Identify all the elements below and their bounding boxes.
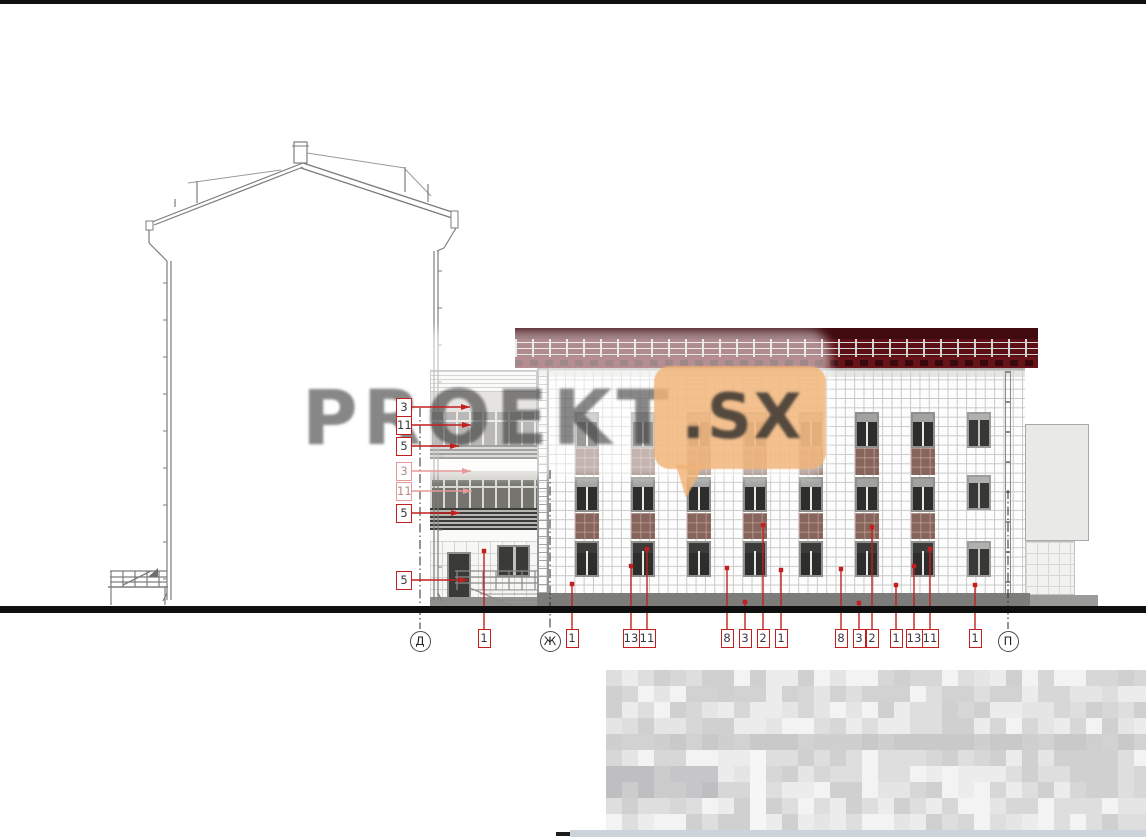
censored-cell — [910, 766, 926, 782]
censored-cell — [958, 782, 974, 798]
censored-cell — [622, 750, 638, 766]
censored-cell — [814, 750, 830, 766]
facade-window — [911, 412, 935, 448]
censored-cell — [686, 766, 702, 782]
censored-cell — [830, 750, 846, 766]
censored-cell — [846, 670, 862, 686]
censored-cell — [750, 718, 766, 734]
censored-cell — [1054, 750, 1070, 766]
censored-cell — [878, 766, 894, 782]
censored-cell — [782, 686, 798, 702]
censored-cell — [638, 702, 654, 718]
callout-box: 13 — [906, 629, 923, 648]
callout-box: 11 — [922, 629, 939, 648]
censored-cell — [974, 718, 990, 734]
censored-cell — [862, 798, 878, 814]
censored-cell — [798, 814, 814, 830]
rear-annex-lower — [1025, 541, 1075, 595]
censored-cell — [974, 782, 990, 798]
censored-cell — [702, 766, 718, 782]
censored-cell — [622, 670, 638, 686]
callout-box: 1 — [775, 629, 788, 648]
censored-cell — [766, 782, 782, 798]
window-transom — [857, 414, 877, 422]
censored-cell — [766, 766, 782, 782]
link-slab-1 — [430, 530, 537, 541]
censored-cell — [830, 718, 846, 734]
censored-cell — [958, 686, 974, 702]
window-transom — [745, 479, 765, 487]
censored-cell — [1086, 798, 1102, 814]
censored-cell — [670, 750, 686, 766]
censored-cell — [638, 814, 654, 830]
censored-cell — [926, 766, 942, 782]
censored-cell — [862, 814, 878, 830]
censored-cell — [942, 766, 958, 782]
censored-cell — [1118, 702, 1134, 718]
censored-cell — [862, 670, 878, 686]
censored-cell — [1070, 686, 1086, 702]
window-mullion — [922, 487, 924, 510]
censored-cell — [670, 686, 686, 702]
censored-cell — [718, 766, 734, 782]
censored-cell — [894, 766, 910, 782]
callout-box: 1 — [890, 629, 903, 648]
spandrel-panel — [855, 448, 879, 475]
censored-cell — [1022, 734, 1038, 750]
link-louvers-1 — [430, 508, 537, 530]
censored-cell — [702, 798, 718, 814]
window-transom — [801, 479, 821, 487]
censored-cell — [894, 734, 910, 750]
censored-cell — [1102, 686, 1118, 702]
censored-cell — [1054, 814, 1070, 830]
censored-cell — [622, 718, 638, 734]
censored-cell — [942, 798, 958, 814]
censored-cell — [1134, 782, 1146, 798]
ground-line — [0, 606, 1146, 613]
censored-cell — [654, 670, 670, 686]
censored-cell — [718, 814, 734, 830]
spandrel-panel — [743, 513, 767, 539]
facade-window — [743, 541, 767, 577]
censored-cell — [1022, 782, 1038, 798]
censored-cell — [686, 702, 702, 718]
censored-cell — [1054, 670, 1070, 686]
spandrel-panel — [855, 513, 879, 539]
spandrel-panel — [799, 513, 823, 539]
censored-cell — [766, 814, 782, 830]
censored-cell — [846, 686, 862, 702]
censored-cell — [862, 702, 878, 718]
censored-cell — [1038, 718, 1054, 734]
censored-cell — [718, 798, 734, 814]
censored-cell — [846, 718, 862, 734]
censored-cell — [1038, 814, 1054, 830]
censored-cell — [670, 782, 686, 798]
facade-window — [743, 477, 767, 512]
censored-cell — [1134, 798, 1146, 814]
annex-plinth — [1030, 595, 1098, 606]
censored-cell — [718, 718, 734, 734]
censored-cell — [734, 718, 750, 734]
facade-window — [911, 477, 935, 512]
censored-cell — [1054, 734, 1070, 750]
censored-cell — [878, 734, 894, 750]
censored-cell — [894, 670, 910, 686]
censored-cell — [1134, 750, 1146, 766]
censored-cell — [638, 734, 654, 750]
censored-cell — [1006, 782, 1022, 798]
censored-cell — [1102, 718, 1118, 734]
censored-cell — [638, 686, 654, 702]
link-plinth — [430, 597, 537, 606]
facade-window — [855, 412, 879, 448]
censored-cell — [1102, 702, 1118, 718]
callout-box: 3 — [853, 629, 866, 648]
censored-cell — [606, 670, 622, 686]
censored-cell — [926, 814, 942, 830]
censored-cell — [718, 750, 734, 766]
censored-cell — [926, 686, 942, 702]
facade-window — [967, 412, 991, 448]
callout-box: 3 — [739, 629, 752, 648]
censored-cell — [622, 766, 638, 782]
censored-cell — [686, 686, 702, 702]
window-mullion — [866, 551, 868, 575]
censored-cell — [718, 702, 734, 718]
censored-cell — [766, 670, 782, 686]
censored-cell — [686, 718, 702, 734]
censored-cell — [1086, 718, 1102, 734]
censored-cell — [670, 734, 686, 750]
censored-cell — [926, 750, 942, 766]
censored-cell — [606, 734, 622, 750]
elevation-drawing-canvas: PROEKT .SX ДЖП11131183218321131113115311… — [0, 0, 1146, 838]
censored-cell — [1086, 766, 1102, 782]
censored-cell — [782, 702, 798, 718]
censored-cell — [830, 734, 846, 750]
censored-cell — [1134, 766, 1146, 782]
facade-window — [575, 477, 599, 512]
censored-cell — [734, 734, 750, 750]
window-mullion — [922, 551, 924, 575]
censored-cell — [814, 718, 830, 734]
censored-cell — [734, 750, 750, 766]
spandrel-panel — [631, 513, 655, 539]
window-mullion — [698, 551, 700, 575]
censored-cell — [830, 814, 846, 830]
censored-cell — [734, 670, 750, 686]
censored-cell — [958, 718, 974, 734]
watermark-bubble-text: .SX — [660, 386, 825, 448]
censored-cell — [1006, 798, 1022, 814]
censored-cell — [734, 814, 750, 830]
censored-cell — [958, 798, 974, 814]
censored-cell — [894, 686, 910, 702]
censored-cell — [1102, 782, 1118, 798]
censored-cell — [910, 798, 926, 814]
censored-cell — [910, 670, 926, 686]
censored-cell — [942, 718, 958, 734]
facade-window — [631, 477, 655, 512]
censored-cell — [990, 814, 1006, 830]
censored-cell — [622, 814, 638, 830]
window-transom — [633, 479, 653, 487]
censored-cell — [782, 814, 798, 830]
censored-cell — [990, 734, 1006, 750]
censored-cell — [1006, 686, 1022, 702]
censored-cell — [958, 702, 974, 718]
censored-cell — [1038, 670, 1054, 686]
censored-cell — [654, 702, 670, 718]
window-mullion — [810, 551, 812, 575]
censored-cell — [990, 686, 1006, 702]
censored-cell — [670, 798, 686, 814]
entrance-window — [497, 545, 530, 577]
censored-cell — [942, 670, 958, 686]
censored-cell — [1038, 702, 1054, 718]
material-callout-box: 5 — [396, 437, 412, 456]
link-glazing-1 — [430, 480, 537, 508]
censored-cell — [1022, 766, 1038, 782]
material-callout-box: 11 — [396, 482, 412, 501]
facade-window — [911, 541, 935, 577]
censored-cell — [1070, 814, 1086, 830]
censored-cell — [990, 798, 1006, 814]
censored-cell — [974, 734, 990, 750]
material-callout-box: 5 — [396, 571, 412, 590]
censored-cell — [846, 782, 862, 798]
censored-cell — [1022, 686, 1038, 702]
window-mullion — [642, 487, 644, 510]
censored-cell — [1070, 702, 1086, 718]
censored-cell — [1118, 750, 1134, 766]
censored-cell — [1006, 734, 1022, 750]
censored-cell — [958, 750, 974, 766]
censored-cell — [1054, 702, 1070, 718]
censored-cell — [1102, 734, 1118, 750]
censored-cell — [1038, 734, 1054, 750]
axis-marker-Ж: Ж — [540, 631, 561, 652]
censored-cell — [958, 734, 974, 750]
censored-cell — [1006, 670, 1022, 686]
censored-cell — [926, 670, 942, 686]
censored-cell — [814, 734, 830, 750]
censored-cell — [926, 798, 942, 814]
censored-cell — [1070, 718, 1086, 734]
censored-cell — [1086, 782, 1102, 798]
censored-cell — [1118, 766, 1134, 782]
censored-cell — [926, 718, 942, 734]
censored-cell — [798, 782, 814, 798]
censored-cell — [910, 718, 926, 734]
censored-cell — [846, 702, 862, 718]
censored-cell — [702, 686, 718, 702]
censored-cell — [782, 798, 798, 814]
censored-cell — [1070, 766, 1086, 782]
censored-cell — [606, 766, 622, 782]
censored-cell — [702, 814, 718, 830]
censored-cell — [1022, 670, 1038, 686]
censored-cell — [1086, 734, 1102, 750]
censored-cell — [1038, 750, 1054, 766]
censored-cell — [1118, 798, 1134, 814]
censored-cell — [606, 718, 622, 734]
facade-window — [855, 541, 879, 577]
censored-cell — [718, 670, 734, 686]
censored-cell — [766, 702, 782, 718]
censored-cell — [622, 782, 638, 798]
window-transom — [857, 479, 877, 487]
censored-cell — [926, 782, 942, 798]
censored-cell — [1118, 686, 1134, 702]
censored-cell — [1118, 670, 1134, 686]
facade-window — [687, 541, 711, 577]
axis-marker-П: П — [998, 631, 1019, 652]
censored-cell — [798, 670, 814, 686]
censored-cell — [1102, 766, 1118, 782]
censored-cell — [990, 782, 1006, 798]
facade-plinth — [537, 593, 1030, 606]
spandrel-panel — [911, 513, 935, 539]
censored-cell — [974, 686, 990, 702]
censored-cell — [910, 750, 926, 766]
censored-cell — [702, 750, 718, 766]
window-mullion — [586, 551, 588, 575]
censored-cell — [1006, 766, 1022, 782]
censored-cell — [942, 686, 958, 702]
censored-cell — [926, 734, 942, 750]
censored-cell — [702, 782, 718, 798]
censored-cell — [878, 718, 894, 734]
censored-cell — [958, 766, 974, 782]
censored-cell — [606, 686, 622, 702]
censored-cell — [1054, 686, 1070, 702]
censored-cell — [862, 782, 878, 798]
censored-cell — [1038, 686, 1054, 702]
censored-cell — [814, 766, 830, 782]
censored-cell — [990, 766, 1006, 782]
censored-cell — [686, 814, 702, 830]
censored-cell — [942, 750, 958, 766]
rear-annex-block — [1025, 424, 1089, 541]
censored-cell — [1102, 798, 1118, 814]
censored-cell — [750, 750, 766, 766]
censored-cell — [942, 782, 958, 798]
censored-cell — [702, 670, 718, 686]
censored-cell — [782, 750, 798, 766]
censored-cell — [878, 670, 894, 686]
censored-cell — [846, 814, 862, 830]
censored-cell — [750, 782, 766, 798]
censored-cell — [638, 750, 654, 766]
censored-cell — [1102, 670, 1118, 686]
window-mullion — [866, 422, 868, 446]
censored-cell — [638, 718, 654, 734]
facade-window — [799, 541, 823, 577]
censored-cell — [798, 702, 814, 718]
material-callout-box: 3 — [396, 462, 412, 481]
window-mullion — [978, 483, 980, 508]
censored-cell — [862, 750, 878, 766]
censored-cell — [1086, 686, 1102, 702]
censored-cell — [670, 766, 686, 782]
censored-cell — [686, 734, 702, 750]
censored-cell — [1070, 750, 1086, 766]
bottom-strip — [570, 830, 1146, 837]
censored-cell — [878, 798, 894, 814]
facade-window — [799, 477, 823, 512]
bottom-strip-tick — [556, 832, 570, 836]
censored-cell — [1102, 814, 1118, 830]
censored-cell — [1006, 718, 1022, 734]
rain-downpipe — [1005, 371, 1011, 603]
facade-window — [855, 477, 879, 512]
censored-cell — [766, 718, 782, 734]
censored-cell — [606, 750, 622, 766]
censored-cell — [1070, 782, 1086, 798]
censored-cell — [958, 670, 974, 686]
censored-cell — [1070, 734, 1086, 750]
censored-cell — [974, 670, 990, 686]
censored-cell — [1102, 750, 1118, 766]
censored-cell — [814, 702, 830, 718]
censored-cell — [814, 670, 830, 686]
censored-cell — [702, 718, 718, 734]
censored-cell — [1118, 782, 1134, 798]
censored-cell — [894, 750, 910, 766]
censored-cell — [782, 734, 798, 750]
censored-cell — [798, 718, 814, 734]
censored-cell — [990, 670, 1006, 686]
censored-cell — [718, 734, 734, 750]
censored-cell — [862, 766, 878, 782]
censored-cell — [1134, 686, 1146, 702]
censored-cell — [1086, 750, 1102, 766]
censored-cell — [862, 686, 878, 702]
censored-cell — [782, 670, 798, 686]
censored-cell — [1086, 702, 1102, 718]
material-callout-box: 3 — [396, 398, 412, 417]
censored-cell — [766, 734, 782, 750]
callout-box: 2 — [757, 629, 770, 648]
axis-marker-Д: Д — [410, 631, 431, 652]
censored-cell — [814, 814, 830, 830]
censored-cell — [654, 686, 670, 702]
callout-box: 8 — [721, 629, 734, 648]
window-mullion — [754, 487, 756, 510]
censored-cell — [894, 814, 910, 830]
window-mullion — [754, 551, 756, 575]
censored-cell — [1118, 718, 1134, 734]
censored-cell — [734, 766, 750, 782]
censored-cell — [894, 702, 910, 718]
censored-title-block — [606, 670, 1146, 830]
censored-cell — [654, 750, 670, 766]
sheet-top-border — [0, 0, 1146, 4]
censored-cell — [718, 686, 734, 702]
censored-cell — [878, 750, 894, 766]
window-mullion — [586, 487, 588, 510]
censored-cell — [606, 814, 622, 830]
censored-cell — [750, 814, 766, 830]
censored-cell — [942, 814, 958, 830]
censored-cell — [686, 750, 702, 766]
material-callout-box: 5 — [396, 504, 412, 523]
censored-cell — [990, 702, 1006, 718]
spandrel-panel — [687, 513, 711, 539]
